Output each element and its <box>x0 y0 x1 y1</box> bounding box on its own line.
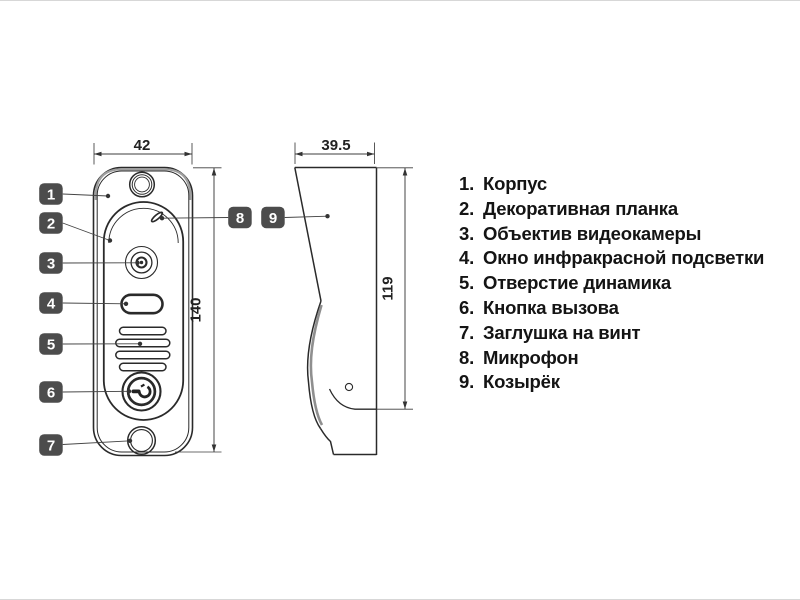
side-view <box>295 168 377 456</box>
legend: 1. Корпус 2. Декоративная планка 3. Объе… <box>459 172 764 395</box>
top-screw-plug <box>130 172 155 197</box>
legend-item-9: 9. Козырёк <box>459 370 764 395</box>
callout-2-badge: 2 <box>39 212 63 234</box>
legend-item-number: 1. <box>459 172 483 197</box>
dim-front-width: 42 <box>94 137 192 165</box>
call-button-bulge <box>308 301 321 429</box>
panel-lower-front <box>321 429 334 455</box>
svg-text:3: 3 <box>47 255 55 272</box>
dim-side-depth-value: 39.5 <box>321 137 350 154</box>
svg-text:2: 2 <box>47 215 55 232</box>
callout-9-badge: 9 <box>261 207 285 229</box>
legend-item-number: 4. <box>459 246 483 271</box>
legend-item-number: 6. <box>459 296 483 321</box>
dim-front-width-value: 42 <box>134 137 151 154</box>
legend-item-3: 3. Объектив видеокамеры <box>459 222 764 247</box>
callout-5-badge: 5 <box>39 333 63 355</box>
legend-item-7: 7. Заглушка на винт <box>459 321 764 346</box>
legend-item-label: Козырёк <box>483 370 560 395</box>
legend-item-label: Декоративная планка <box>483 197 678 222</box>
legend-item-label: Кнопка вызова <box>483 296 619 321</box>
front-view <box>94 168 193 456</box>
svg-text:4: 4 <box>47 295 56 312</box>
legend-item-label: Корпус <box>483 172 547 197</box>
callout-6-badge: 6 <box>39 381 63 403</box>
dim-side-height-value: 119 <box>380 276 397 300</box>
callout-1-badge: 1 <box>39 183 63 205</box>
side-screw-hole <box>345 383 352 390</box>
svg-text:6: 6 <box>47 384 55 401</box>
legend-item-1: 1. Корпус <box>459 172 764 197</box>
legend-item-number: 9. <box>459 370 483 395</box>
legend-item-label: Микрофон <box>483 346 578 371</box>
decorative-plate <box>104 202 183 420</box>
legend-item-8: 8. Микрофон <box>459 346 764 371</box>
doorbell-diagram-page: 42 140 39.5 <box>0 0 800 600</box>
svg-text:5: 5 <box>47 336 55 353</box>
dim-front-height-value: 140 <box>188 297 205 322</box>
svg-text:8: 8 <box>236 210 244 227</box>
legend-item-number: 5. <box>459 271 483 296</box>
legend-item-number: 7. <box>459 321 483 346</box>
legend-item-label: Заглушка на винт <box>483 321 640 346</box>
svg-text:1: 1 <box>47 186 55 203</box>
svg-text:9: 9 <box>269 210 277 227</box>
legend-item-number: 3. <box>459 222 483 247</box>
legend-item-2: 2. Декоративная планка <box>459 197 764 222</box>
dim-side-height: 119 <box>377 168 414 409</box>
visor-bottom-curve <box>330 389 377 409</box>
legend-item-5: 5. Отверстие динамика <box>459 271 764 296</box>
legend-item-6: 6. Кнопка вызова <box>459 296 764 321</box>
callout-4-badge: 4 <box>39 292 63 314</box>
legend-item-label: Окно инфракрасной подсветки <box>483 246 764 271</box>
legend-item-number: 8. <box>459 346 483 371</box>
svg-text:7: 7 <box>47 437 55 454</box>
dim-side-depth: 39.5 <box>295 137 375 164</box>
legend-item-4: 4. Окно инфракрасной подсветки <box>459 246 764 271</box>
visor-front-slope <box>295 168 321 302</box>
callout-8-badge: 8 <box>228 207 252 229</box>
legend-item-number: 2. <box>459 197 483 222</box>
callout-3-badge: 3 <box>39 252 63 274</box>
legend-item-label: Объектив видеокамеры <box>483 222 701 247</box>
legend-item-label: Отверстие динамика <box>483 271 671 296</box>
callout-7-badge: 7 <box>39 434 63 456</box>
